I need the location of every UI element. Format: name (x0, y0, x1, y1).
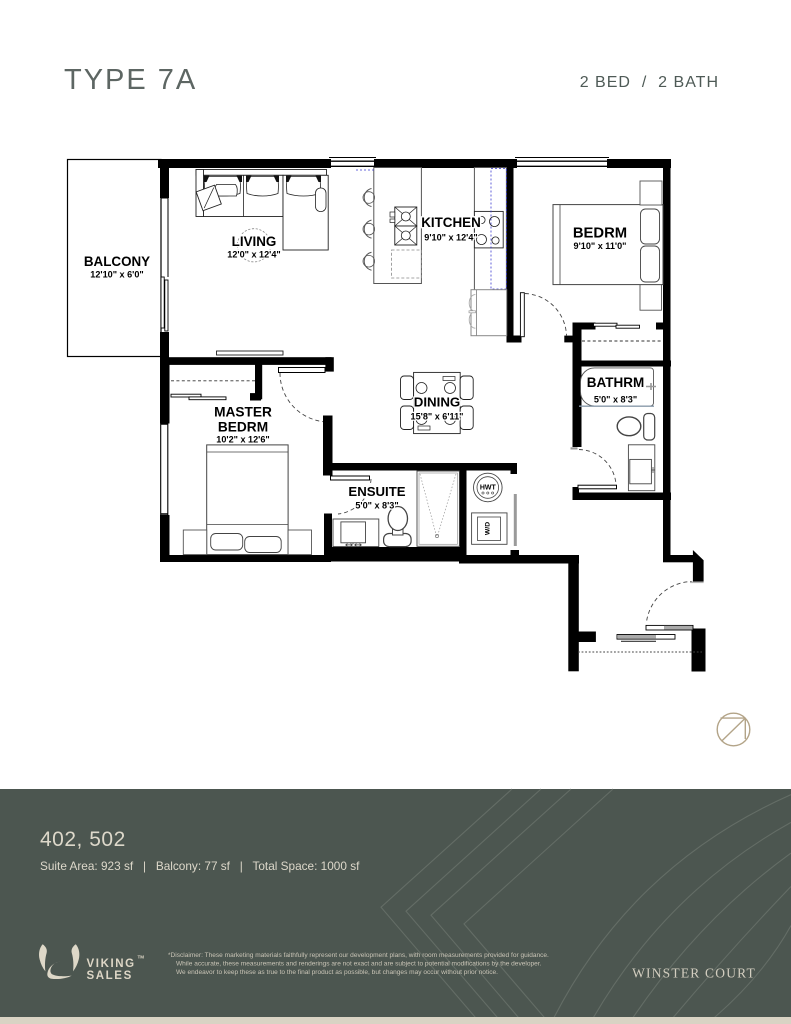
svg-text:Suite Area: 923 sf | Balco: Suite Area: 923 sf | Balcony: 77 sf | To… (40, 859, 360, 873)
svg-text:SALES: SALES (87, 970, 133, 982)
svg-text:10'2" x 12'6": 10'2" x 12'6" (216, 434, 269, 444)
svg-text:5'0" x 8'3": 5'0" x 8'3" (355, 500, 398, 510)
svg-text:BEDRM: BEDRM (573, 226, 627, 242)
svg-text:402, 502: 402, 502 (40, 828, 126, 851)
svg-text:TM: TM (138, 955, 145, 960)
svg-text:W/D: W/D (485, 522, 492, 535)
svg-text:BALCONY: BALCONY (84, 254, 150, 269)
svg-text:5'0" x 8'3": 5'0" x 8'3" (594, 395, 637, 405)
svg-text:MASTER: MASTER (214, 405, 272, 420)
svg-text:DINING: DINING (414, 395, 461, 410)
svg-text:While accurate, these measurem: While accurate, these measurements and r… (176, 961, 542, 968)
svg-text:LIVING: LIVING (232, 234, 277, 249)
svg-text:KITCHEN: KITCHEN (421, 215, 481, 230)
svg-text:9'10" x 12'4": 9'10" x 12'4" (424, 233, 477, 243)
svg-text:WINSTER COURT: WINSTER COURT (632, 966, 756, 981)
svg-text:VIKING: VIKING (87, 958, 136, 970)
svg-text:BEDRM: BEDRM (218, 419, 268, 434)
svg-text:HWT: HWT (480, 484, 497, 491)
svg-text:9'10" x 11'0": 9'10" x 11'0" (574, 241, 627, 251)
svg-text:12'0" x 12'4": 12'0" x 12'4" (227, 250, 280, 260)
svg-text:12'10" x 6'0": 12'10" x 6'0" (90, 269, 143, 279)
svg-text:*Disclaimer: These marketing m: *Disclaimer: These marketing materials f… (168, 952, 549, 959)
svg-text:ENSUITE: ENSUITE (348, 484, 405, 499)
svg-text:BATHRM: BATHRM (587, 375, 645, 390)
svg-text:We endeavor to keep these as t: We endeavor to keep these as true to the… (176, 969, 498, 976)
svg-text:TYPE 7A: TYPE 7A (64, 64, 197, 96)
svg-text:2 BED / 2 BATH: 2 BED / 2 BATH (580, 74, 719, 91)
svg-text:15'8" x 6'11": 15'8" x 6'11" (411, 412, 464, 422)
